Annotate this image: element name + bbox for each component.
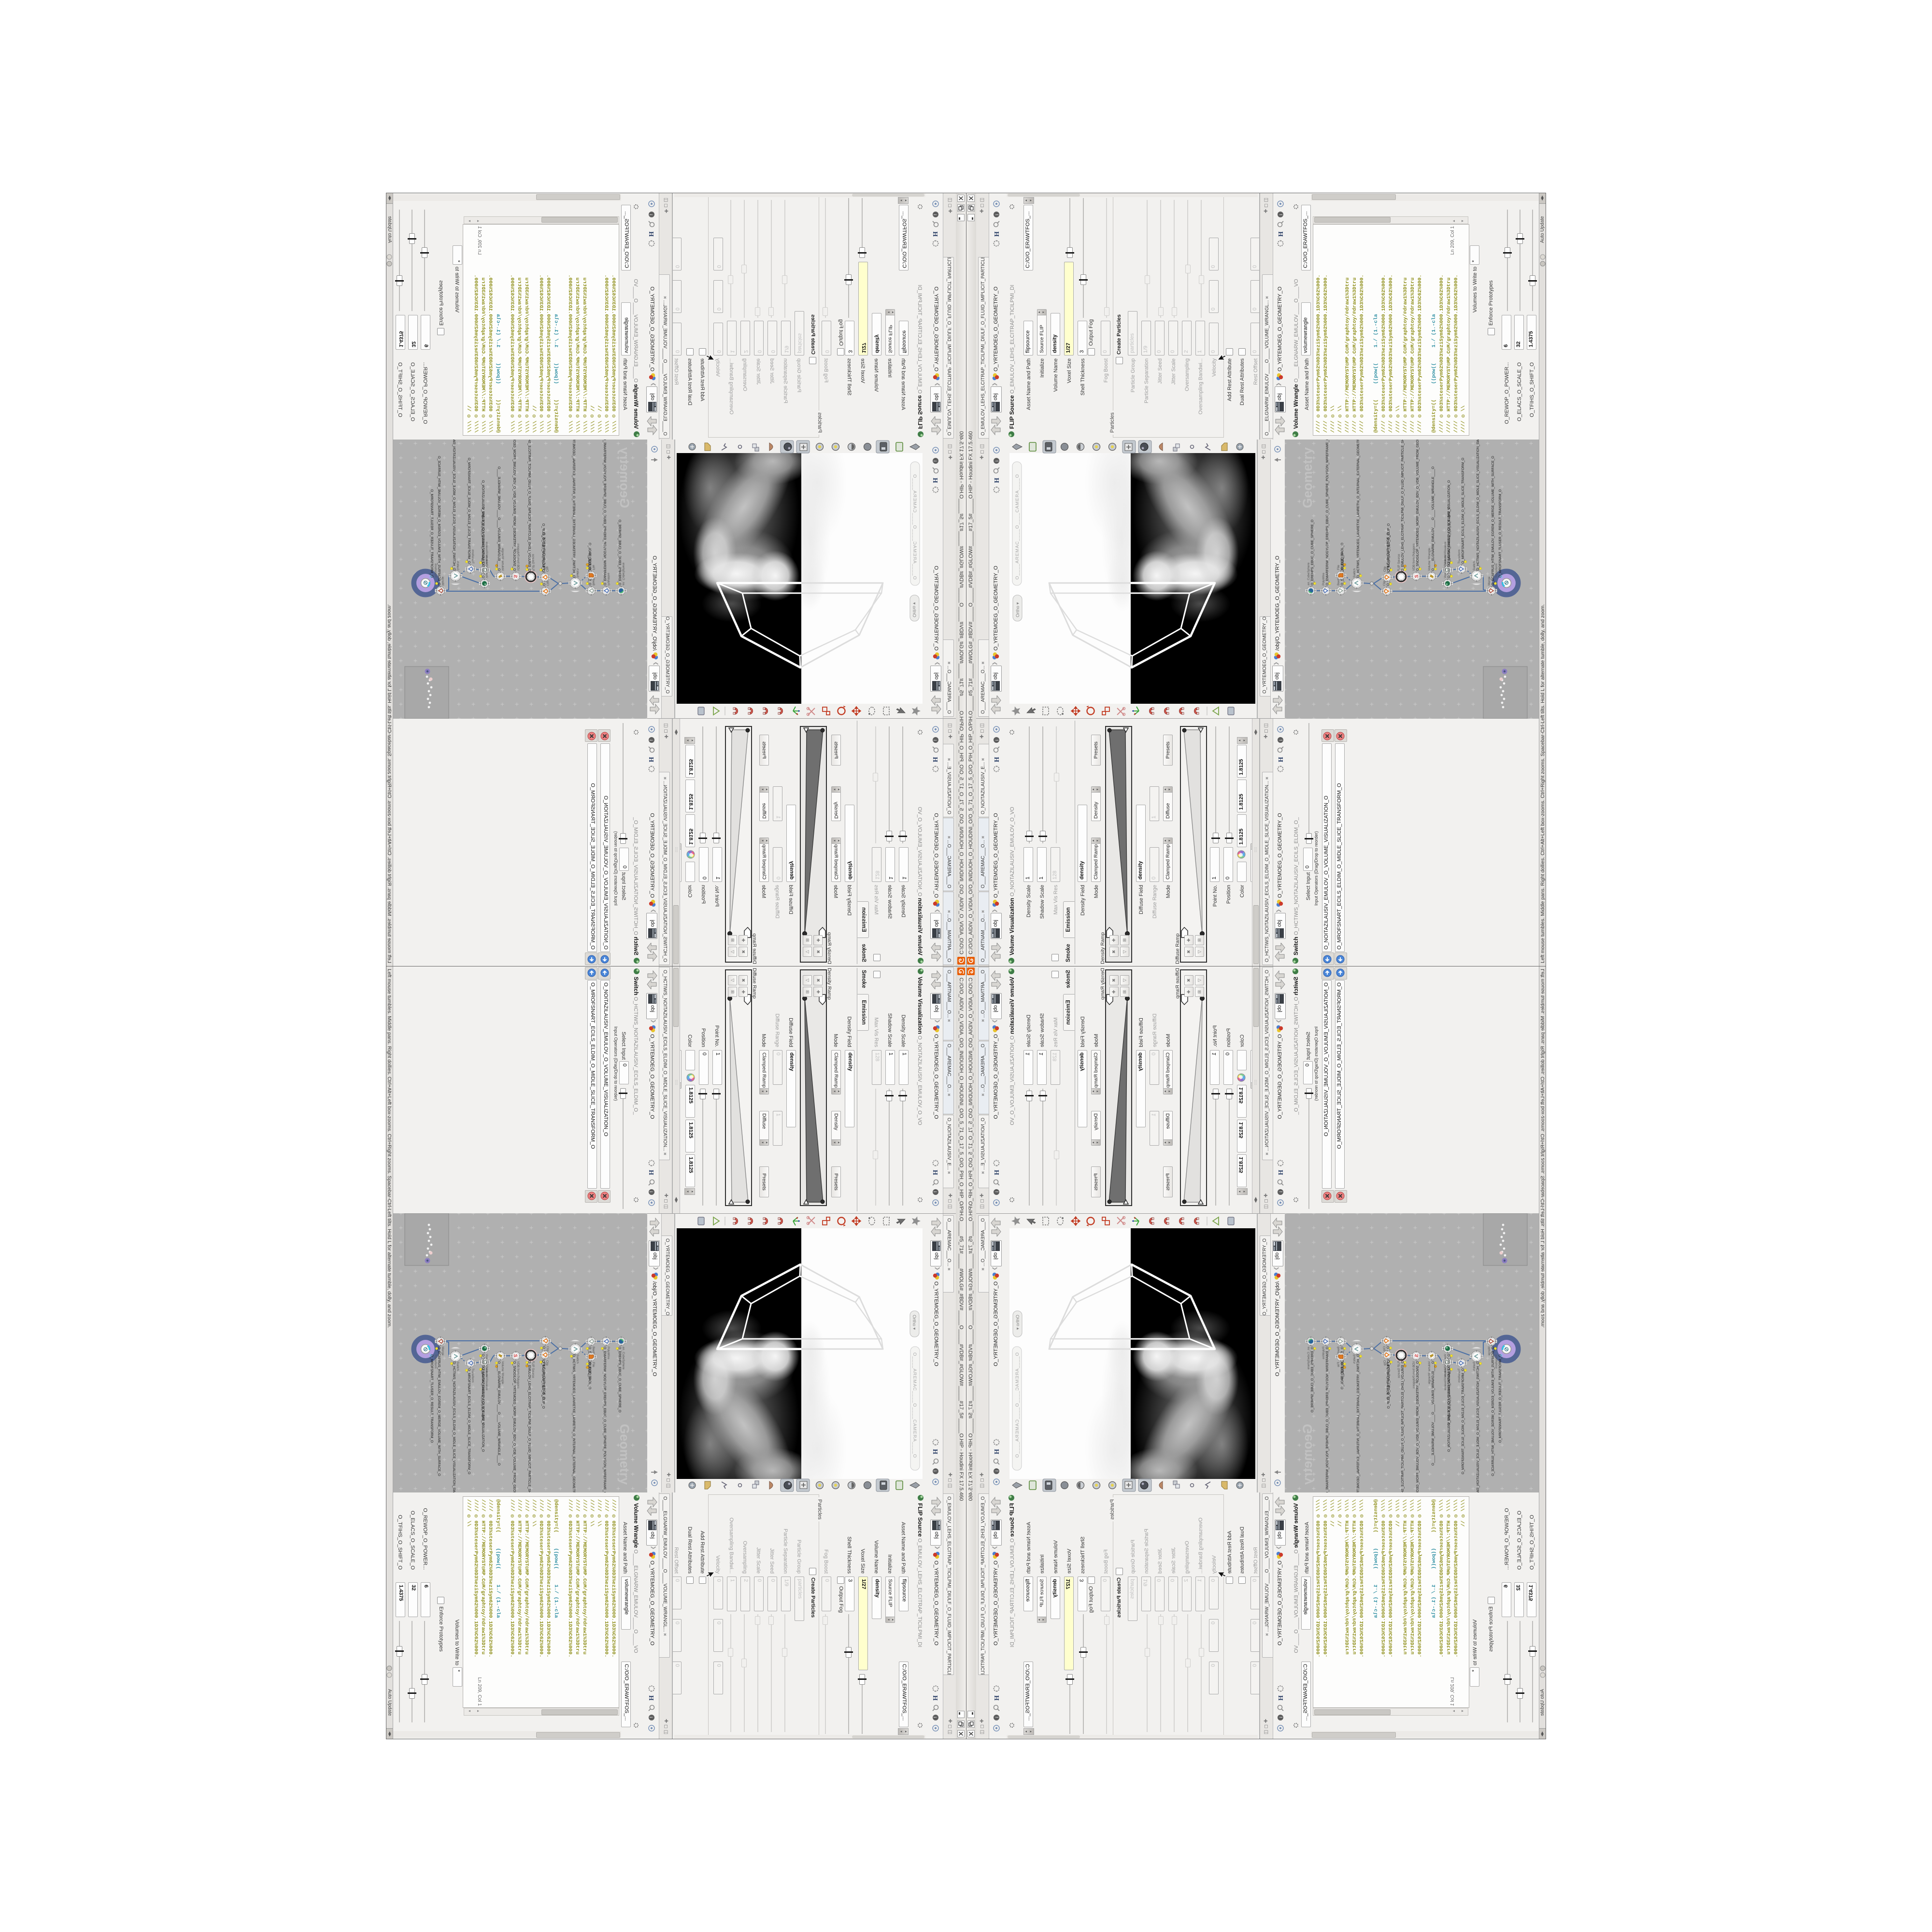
svg-text:File: File: [1337, 1362, 1340, 1367]
svg-text:O_EMARFERIW_NOGYLOP_EREHPS_EBU: O_EMARFERIW_NOGYLOP_EREHPS_EBUC_O_CUBE_S…: [603, 440, 606, 585]
svg-text:VDB from Polygons: VDB from Polygons: [516, 1361, 520, 1389]
svg-text:i: i: [932, 1717, 938, 1718]
svg-text:H: H: [647, 1695, 654, 1701]
svg-text:Switch: Switch: [456, 561, 459, 570]
svg-text:Switch: Switch: [1473, 561, 1476, 570]
svg-text:i: i: [1279, 739, 1284, 741]
svg-text:S: S: [512, 575, 518, 578]
svg-text:O_EMARFERIW_NOGYLOP_EREHPS_EBU: O_EMARFERIW_NOGYLOP_EREHPS_EBUC_O_CUBE_S…: [1326, 440, 1329, 585]
svg-text:O_HCTIWS_NOITAZILAUSIV_ECILS_E: O_HCTIWS_NOITAZILAUSIV_ECILS_ELDIM_O_MID…: [1477, 1362, 1480, 1492]
svg-text:i: i: [648, 1191, 653, 1193]
svg-text:O_ECAFRUS_HTIW_EMULOV_EGREM_O_: O_ECAFRUS_HTIW_EMULOV_EGREM_O_MERGE_VOLU…: [437, 1347, 440, 1477]
svg-text:H: H: [931, 231, 938, 237]
svg-text:O_MROFSNART_TLUSER_O_RESULT_TR: O_MROFSNART_TLUSER_O_RESULT_TRANSFORM_O: [430, 489, 433, 578]
svg-text:O____AREMAC____O____CAMERA____: O____AREMAC____O____CAMERA____O: [1015, 1352, 1020, 1458]
svg-text:O_HCTIWS_NOITAZILAUSIV_ECILS_E: O_HCTIWS_NOITAZILAUSIV_ECILS_ELDIM_O_MID…: [452, 1362, 455, 1492]
svg-text:O_EMULOV_LEHS_ELCITRAP_TICILPM: O_EMULOV_LEHS_ELCITRAP_TICILPMI_DIULF_O_…: [527, 440, 531, 571]
svg-text:VolumeVisualize: VolumeVisualize: [1444, 555, 1447, 578]
svg-text:VDB from Polygons: VDB from Polygons: [1412, 543, 1416, 571]
svg-text:O____AREMAC____O____CAMERA____: O____AREMAC____O____CAMERA____O: [1015, 474, 1020, 580]
svg-text:H: H: [1278, 1695, 1285, 1701]
svg-text:H: H: [931, 1449, 938, 1454]
svg-text:O_MROFSNART_TLUSER_O_RESULT_TR: O_MROFSNART_TLUSER_O_RESULT_TRANSFORM_O: [1499, 489, 1502, 578]
svg-text:O_ELIF̲_DAOL_O: O_ELIF̲_DAOL_O: [1341, 542, 1344, 570]
svg-text:VolumeVisualize: VolumeVisualize: [1444, 1354, 1447, 1377]
svg-text:VDB from Polygons: VDB from Polygons: [516, 543, 520, 571]
svg-text:O_HCTIWS_NOITAZILAUSIV_ECILS_E: O_HCTIWS_NOITAZILAUSIV_ECILS_ELDIM_O_MID…: [452, 440, 455, 570]
svg-text:Clip: Clip: [1383, 1360, 1387, 1366]
svg-text:Volume Wrangle: Volume Wrangle: [1428, 548, 1431, 571]
svg-text:i: i: [1279, 214, 1284, 215]
svg-text:S: S: [512, 1354, 518, 1358]
svg-text:i: i: [994, 460, 1000, 462]
svg-text:VolumeVisualize: VolumeVisualize: [485, 555, 488, 578]
svg-text:O_MROFSNART_ECILS_ELDIM_O_MIDL: O_MROFSNART_ECILS_ELDIM_O_MIDLE_SLICE_TR…: [1462, 457, 1465, 564]
svg-text:Switch: Switch: [576, 568, 579, 578]
svg-text:H: H: [994, 231, 1001, 237]
svg-text:i: i: [994, 1470, 1000, 1472]
svg-text:O_EREHPS_EBUC_O_CUBE_SPHERE_O: O_EREHPS_EBUC_O_CUBE_SPHERE_O: [1311, 519, 1314, 585]
svg-text:H: H: [1278, 1170, 1285, 1175]
svg-text:O_ELIF̲_DAOL_O: O_ELIF̲_DAOL_O: [1341, 1362, 1344, 1390]
svg-text:FLIP Source: FLIP Source: [531, 1361, 535, 1378]
svg-text:an_CubeSphere: an_CubeSphere: [622, 562, 625, 585]
svg-text:i: i: [648, 1717, 653, 1718]
svg-text:H: H: [647, 1170, 654, 1175]
svg-text:O_NOITAZILAUSIV_EMULOV_O_VOLUM: O_NOITAZILAUSIV_EMULOV_O_VOLUME_VISUALIZ…: [481, 1354, 484, 1452]
svg-text:O_MROFSNART_ECILS_ELDIM_O_MIDL: O_MROFSNART_ECILS_ELDIM_O_MIDLE_SLICE_TR…: [1462, 1368, 1465, 1475]
svg-text:FLIP Source: FLIP Source: [531, 554, 535, 571]
svg-text:O_MROFSNART_TLUSER_O_RESULT_TR: O_MROFSNART_TLUSER_O_RESULT_TRANSFORM_O: [1499, 1354, 1502, 1443]
svg-text:O_HCTIWS_YRTEMOEG_LANRETXE_LAN: O_HCTIWS_YRTEMOEG_LANRETXE_LANRETNI_O_IN…: [572, 440, 575, 578]
svg-text:an_CubeSphere: an_CubeSphere: [1307, 562, 1310, 585]
svg-text:i: i: [994, 1717, 1000, 1718]
svg-text:H: H: [931, 757, 938, 762]
svg-text:O____AREMAC____O____CAMERA____: O____AREMAC____O____CAMERA____O: [912, 474, 917, 580]
svg-text:i: i: [994, 1191, 1000, 1193]
svg-text:Transform: Transform: [471, 1368, 474, 1382]
svg-text:Volume Wrangle: Volume Wrangle: [501, 548, 504, 571]
svg-text:Transform: Transform: [1495, 1354, 1498, 1368]
svg-text:Merge: Merge: [441, 576, 444, 585]
svg-text:O_MROFSNART_ECILS_ELDIM_O_MIDL: O_MROFSNART_ECILS_ELDIM_O_MIDLE_SLICE_TR…: [467, 457, 470, 564]
svg-text:i: i: [648, 214, 653, 215]
svg-text:O_EMULOV_LEHS_ELCITRAP_TICILPM: O_EMULOV_LEHS_ELCITRAP_TICILPMI_DIULF_O_…: [1401, 440, 1405, 571]
svg-text:an_CubeSphere: an_CubeSphere: [622, 1347, 625, 1370]
svg-text:Ortho ▾: Ortho ▾: [911, 602, 917, 617]
svg-text:Geometry: Geometry: [1300, 447, 1315, 508]
svg-text:O_EREHPS_EBUC_O_CUBE_SPHERE_O: O_EREHPS_EBUC_O_CUBE_SPHERE_O: [618, 519, 621, 585]
svg-text:Merge: Merge: [1488, 576, 1491, 585]
svg-text:Geometry: Geometry: [1300, 1424, 1315, 1485]
svg-text:Switch: Switch: [456, 1362, 459, 1371]
svg-text:i: i: [932, 214, 938, 215]
svg-text:VDB from Polygons: VDB from Polygons: [1412, 1361, 1416, 1389]
svg-text:Clip: Clip: [1383, 566, 1387, 572]
svg-text:S: S: [1414, 575, 1420, 578]
svg-text:H: H: [647, 757, 654, 762]
svg-text:H: H: [931, 1170, 938, 1175]
svg-text:O____ELGNARW_EMULOV____O____VO: O____ELGNARW_EMULOV____O____VOLUME_WRANG…: [497, 1361, 500, 1466]
svg-text:O_ECAFRUS_HTIW_EMULOV_EGREM_O_: O_ECAFRUS_HTIW_EMULOV_EGREM_O_MERGE_VOLU…: [437, 455, 440, 585]
svg-text:O_HCTIWS_YRTEMOEG_LANRETXE_LAN: O_HCTIWS_YRTEMOEG_LANRETXE_LANRETNI_O_IN…: [1357, 1354, 1360, 1492]
svg-text:O_ECAFRUS_HTIW_EMULOV_EGREM_O_: O_ECAFRUS_HTIW_EMULOV_EGREM_O_MERGE_VOLU…: [1492, 1347, 1495, 1477]
svg-text:Clip: Clip: [545, 1360, 549, 1366]
svg-text:Clip: Clip: [545, 566, 549, 572]
svg-text:O_HCTIWS_YRTEMOEG_LANRETXE_LAN: O_HCTIWS_YRTEMOEG_LANRETXE_LANRETNI_O_IN…: [572, 1354, 575, 1492]
svg-text:H: H: [1278, 231, 1285, 237]
svg-text:O____ELGNARW_EMULOV____O____VO: O____ELGNARW_EMULOV____O____VOLUME_WRANG…: [1432, 1361, 1435, 1466]
svg-text:PolyWire: PolyWire: [1322, 1347, 1325, 1359]
svg-text:Switch: Switch: [1353, 568, 1356, 578]
svg-text:Switch: Switch: [1353, 1354, 1356, 1364]
svg-text:O_ELIF̲_DAOL_O: O_ELIF̲_DAOL_O: [588, 1362, 591, 1390]
svg-text:Transform: Transform: [1495, 564, 1498, 578]
svg-text:i: i: [932, 739, 938, 741]
svg-text:i: i: [932, 460, 938, 462]
svg-text:O_HCTIWS_NOITAZILAUSIV_ECILS_E: O_HCTIWS_NOITAZILAUSIV_ECILS_ELDIM_O_MID…: [1477, 440, 1480, 570]
svg-text:O_ECAFRUS_HTIW_EMULOV_EGREM_O_: O_ECAFRUS_HTIW_EMULOV_EGREM_O_MERGE_VOLU…: [1492, 455, 1495, 585]
svg-text:FLIP Source: FLIP Source: [1397, 1361, 1401, 1378]
svg-text:H: H: [931, 1695, 938, 1701]
svg-text:VolumeVisualize: VolumeVisualize: [485, 1354, 488, 1377]
svg-text:O_ECAFRUS_PIL̲C_O_CLIP_O: O_ECAFRUS_PIL̲C_O_CLIP_O: [1387, 523, 1391, 572]
svg-text:O_SNOGILOP_YRTEMOEG_MORF_EMULO: O_SNOGILOP_YRTEMOEG_MORF_EMULOV_BDV_O_VD…: [512, 440, 516, 571]
svg-text:File: File: [592, 1362, 595, 1367]
svg-text:O_ECAFRUS_PIL̲C_O_CLIP_O: O_ECAFRUS_PIL̲C_O_CLIP_O: [541, 523, 545, 572]
svg-text:File: File: [592, 565, 595, 570]
svg-text:H: H: [994, 1449, 1001, 1454]
svg-text:O_EREHPS_EBUC_O_CUBE_SPHERE_O: O_EREHPS_EBUC_O_CUBE_SPHERE_O: [1311, 1347, 1314, 1413]
svg-text:Volume Wrangle: Volume Wrangle: [501, 1361, 504, 1384]
svg-text:O_ECAFRUS_PIL̲C_O_CLIP_O: O_ECAFRUS_PIL̲C_O_CLIP_O: [541, 1360, 545, 1409]
svg-text:S: S: [1414, 1354, 1420, 1358]
svg-text:Merge: Merge: [1488, 1347, 1491, 1356]
svg-text:O_EMULOV_LEHS_ELCITRAP_TICILPM: O_EMULOV_LEHS_ELCITRAP_TICILPMI_DIULF_O_…: [527, 1361, 531, 1492]
svg-text:i: i: [932, 1191, 938, 1193]
svg-text:PolyWire: PolyWire: [1322, 573, 1325, 585]
svg-text:Geometry: Geometry: [617, 447, 632, 508]
svg-text:O_ECAFRUS_PIL̲C_O_CLIP_O: O_ECAFRUS_PIL̲C_O_CLIP_O: [1387, 1360, 1391, 1409]
svg-text:Ortho ▾: Ortho ▾: [1015, 1315, 1021, 1330]
svg-text:H: H: [994, 1170, 1001, 1175]
svg-text:O_HCTIWS_YRTEMOEG_LANRETXE_LAN: O_HCTIWS_YRTEMOEG_LANRETXE_LANRETNI_O_IN…: [1357, 440, 1360, 578]
svg-text:Ortho ▾: Ortho ▾: [911, 1315, 917, 1330]
svg-text:Transform: Transform: [1458, 550, 1461, 564]
svg-text:Transform: Transform: [434, 1354, 437, 1368]
svg-text:O_SNOGILOP_YRTEMOEG_MORF_EMULO: O_SNOGILOP_YRTEMOEG_MORF_EMULOV_BDV_O_VD…: [1416, 440, 1420, 571]
svg-text:Geometry: Geometry: [617, 1424, 632, 1485]
svg-text:Ortho ▾: Ortho ▾: [1015, 602, 1021, 617]
svg-text:O_NOITAZILAUSIV_EMULOV_O_VOLUM: O_NOITAZILAUSIV_EMULOV_O_VOLUME_VISUALIZ…: [1448, 1354, 1451, 1452]
svg-text:PolyWire: PolyWire: [607, 573, 610, 585]
svg-text:O_EMARFERIW_NOGYLOP_EREHPS_EBU: O_EMARFERIW_NOGYLOP_EREHPS_EBUC_O_CUBE_S…: [1326, 1347, 1329, 1492]
svg-text:Merge: Merge: [441, 1347, 444, 1356]
svg-text:H: H: [647, 231, 654, 237]
svg-text:H: H: [931, 478, 938, 483]
svg-text:O_NOITAZILAUSIV_EMULOV_O_VOLUM: O_NOITAZILAUSIV_EMULOV_O_VOLUME_VISUALIZ…: [1448, 480, 1451, 578]
svg-text:Volume Wrangle: Volume Wrangle: [1428, 1361, 1431, 1384]
svg-text:O_ELIF̲_DAOL_O: O_ELIF̲_DAOL_O: [588, 542, 591, 570]
svg-text:Switch: Switch: [1473, 1362, 1476, 1371]
svg-text:PolyWire: PolyWire: [607, 1347, 610, 1359]
svg-text:O_NOITAZILAUSIV_EMULOV_O_VOLUM: O_NOITAZILAUSIV_EMULOV_O_VOLUME_VISUALIZ…: [481, 480, 484, 578]
svg-text:Transform: Transform: [471, 550, 474, 564]
svg-text:i: i: [1279, 1717, 1284, 1718]
svg-text:H: H: [994, 757, 1001, 762]
svg-text:FLIP Source: FLIP Source: [1397, 554, 1401, 571]
svg-text:O_SNOGILOP_YRTEMOEG_MORF_EMULO: O_SNOGILOP_YRTEMOEG_MORF_EMULOV_BDV_O_VD…: [1416, 1361, 1420, 1492]
svg-text:O____AREMAC____O____CAMERA____: O____AREMAC____O____CAMERA____O: [912, 1352, 917, 1458]
svg-text:H: H: [994, 478, 1001, 483]
svg-text:O_SNOGILOP_YRTEMOEG_MORF_EMULO: O_SNOGILOP_YRTEMOEG_MORF_EMULOV_BDV_O_VD…: [512, 1361, 516, 1492]
svg-text:O_EMARFERIW_NOGYLOP_EREHPS_EBU: O_EMARFERIW_NOGYLOP_EREHPS_EBUC_O_CUBE_S…: [603, 1347, 606, 1492]
svg-text:i: i: [932, 1470, 938, 1472]
svg-text:H: H: [1278, 757, 1285, 762]
svg-text:i: i: [994, 214, 1000, 215]
svg-text:i: i: [994, 739, 1000, 741]
svg-text:O_MROFSNART_ECILS_ELDIM_O_MIDL: O_MROFSNART_ECILS_ELDIM_O_MIDLE_SLICE_TR…: [467, 1368, 470, 1475]
svg-text:i: i: [648, 739, 653, 741]
svg-text:Switch: Switch: [576, 1354, 579, 1364]
svg-text:O_EREHPS_EBUC_O_CUBE_SPHERE_O: O_EREHPS_EBUC_O_CUBE_SPHERE_O: [618, 1347, 621, 1413]
svg-text:O____ELGNARW_EMULOV____O____VO: O____ELGNARW_EMULOV____O____VOLUME_WRANG…: [1432, 466, 1435, 571]
svg-text:File: File: [1337, 565, 1340, 570]
svg-text:O____ELGNARW_EMULOV____O____VO: O____ELGNARW_EMULOV____O____VOLUME_WRANG…: [497, 466, 500, 571]
svg-text:i: i: [1279, 1191, 1284, 1193]
svg-text:an_CubeSphere: an_CubeSphere: [1307, 1347, 1310, 1370]
svg-text:O_MROFSNART_TLUSER_O_RESULT_TR: O_MROFSNART_TLUSER_O_RESULT_TRANSFORM_O: [430, 1354, 433, 1443]
svg-text:O_EMULOV_LEHS_ELCITRAP_TICILPM: O_EMULOV_LEHS_ELCITRAP_TICILPMI_DIULF_O_…: [1401, 1361, 1405, 1492]
svg-text:H: H: [994, 1695, 1001, 1701]
svg-text:Transform: Transform: [1458, 1368, 1461, 1382]
svg-text:Transform: Transform: [434, 564, 437, 578]
